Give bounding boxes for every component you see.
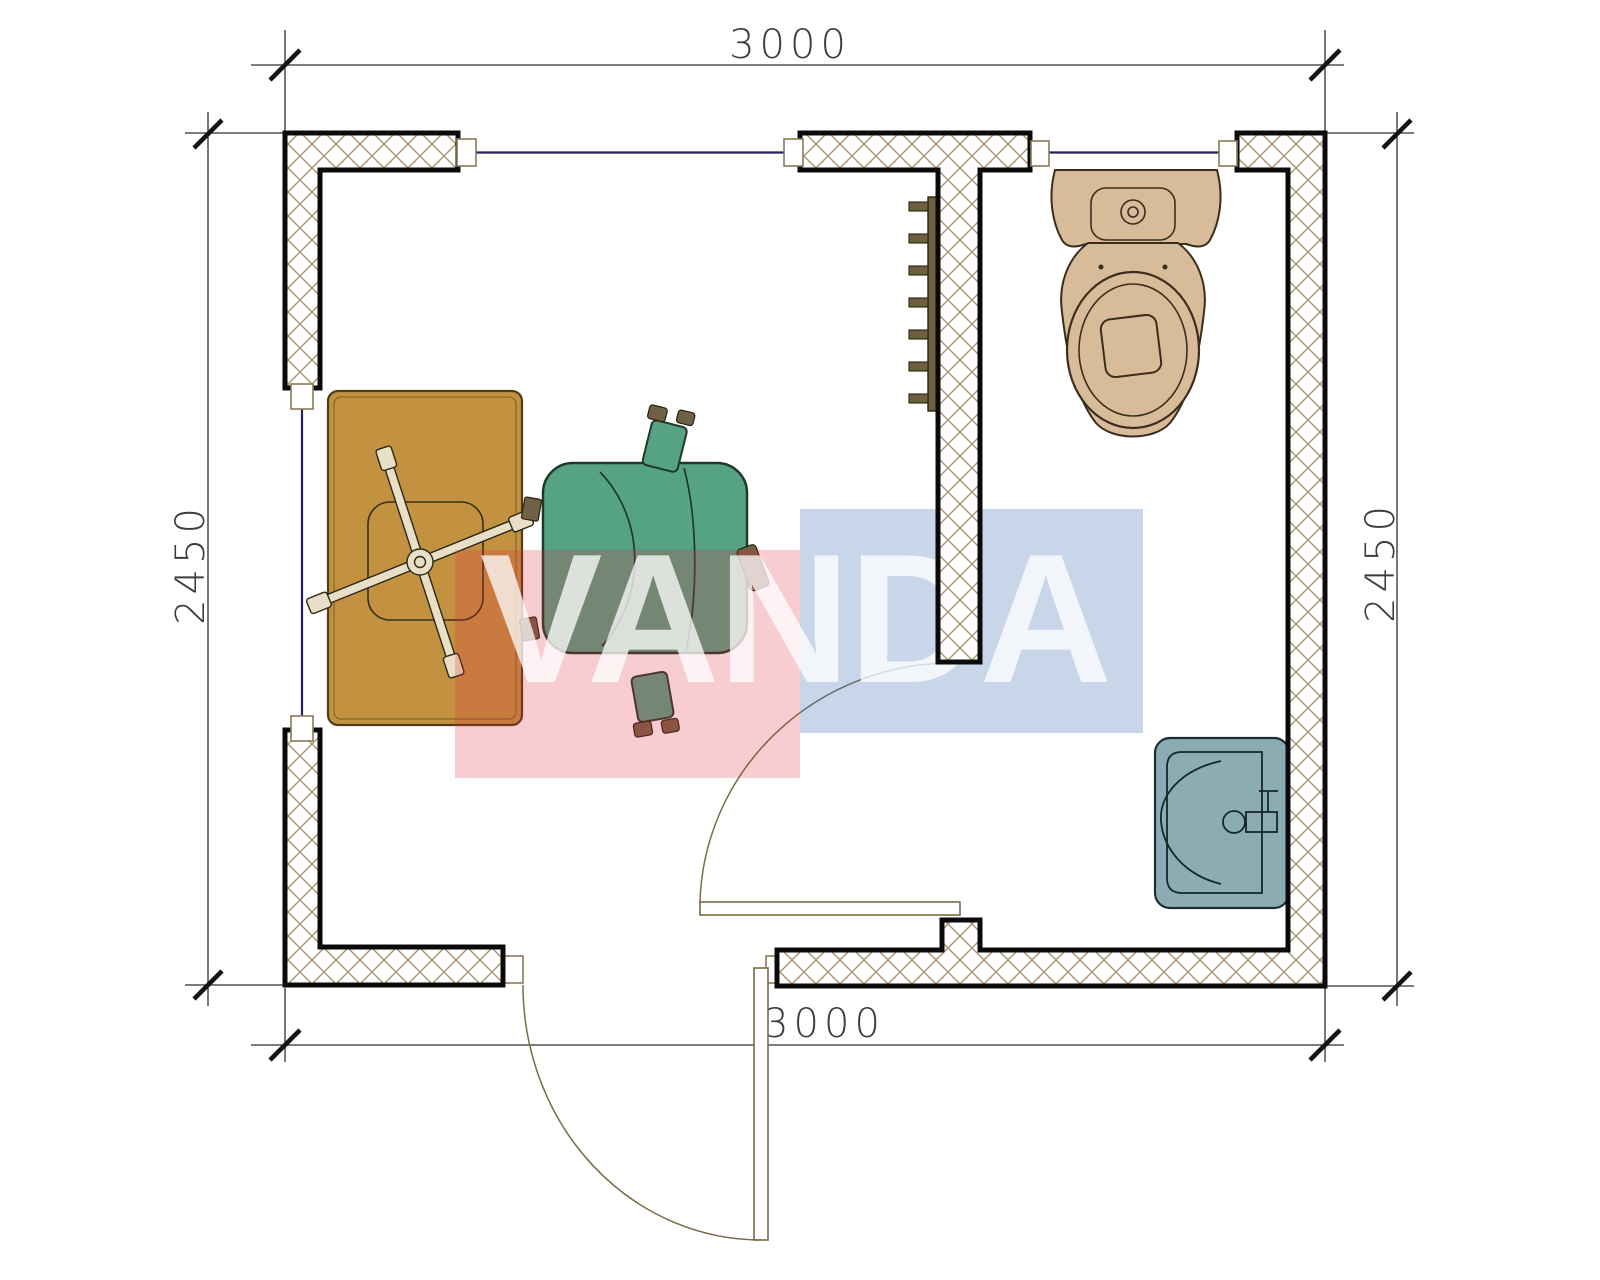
floor-plan-drawing: 3000 3000 2450 2450 [0, 0, 1600, 1280]
window-left [291, 384, 313, 741]
wall-top-left [285, 133, 458, 388]
sink-body [1155, 738, 1289, 908]
window-top-2 [1031, 141, 1237, 166]
radiator-fin [909, 394, 928, 403]
dimension-bottom: 3000 [251, 988, 1344, 1062]
dimension-right-value: 2450 [1358, 501, 1404, 623]
dimension-bottom-value: 3000 [763, 1001, 885, 1047]
window-top-1 [457, 139, 803, 166]
toilet [1051, 170, 1220, 437]
wc-door-leaf [700, 902, 960, 915]
entry-door [503, 956, 778, 1240]
radiator-fin [909, 266, 928, 275]
watermark-text: VANDA [480, 515, 1111, 721]
entry-door-swing [523, 985, 761, 1240]
radiator-fin [909, 298, 928, 307]
radiator-fin [909, 234, 928, 243]
radiator-fin [909, 330, 928, 339]
entry-door-leaf [754, 968, 768, 1240]
entry-door-jamb [503, 956, 523, 983]
sink [1155, 738, 1289, 908]
floor-plan-canvas: 3000 3000 2450 2450 [0, 0, 1600, 1280]
dimension-right: 2450 [1327, 112, 1414, 1006]
dimension-top: 3000 [251, 22, 1344, 131]
chair-base-hub [407, 549, 433, 575]
dimension-top-value: 3000 [729, 22, 851, 68]
watermark: VANDA [455, 509, 1143, 778]
radiator-fin [909, 202, 928, 211]
dimension-left-value: 2450 [168, 503, 214, 625]
toilet-drain [1100, 314, 1163, 378]
dimension-left: 2450 [168, 112, 283, 1006]
radiator-fin [909, 362, 928, 371]
